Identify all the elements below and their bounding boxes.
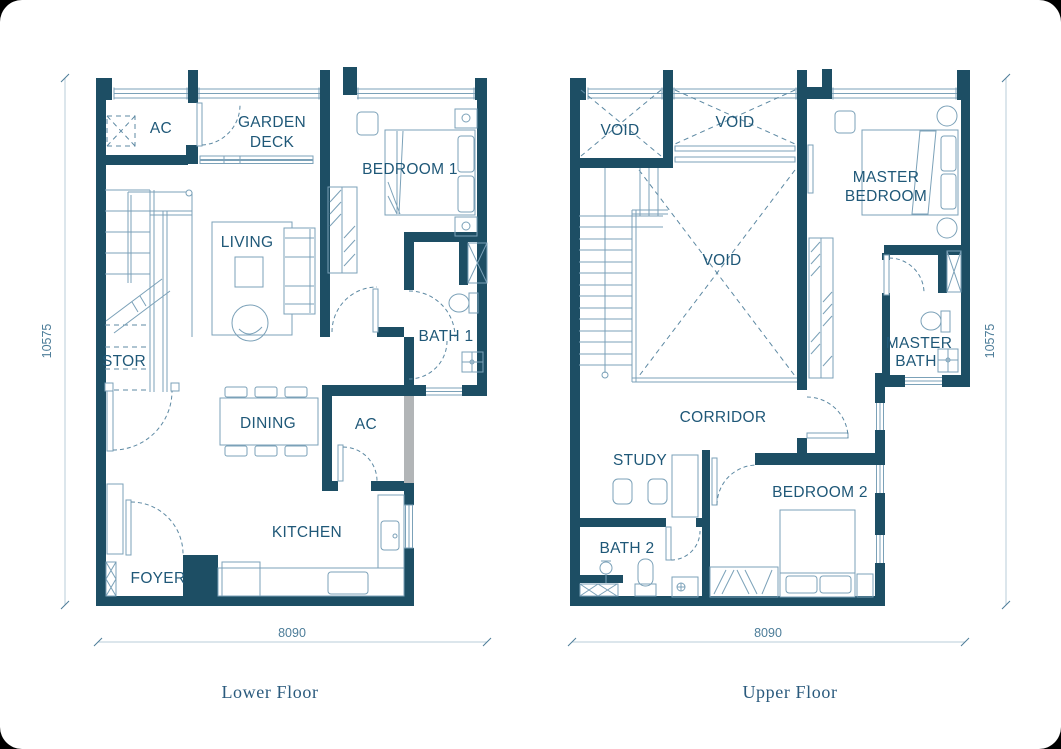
counter-icon [218, 568, 404, 596]
room-label-dining: DINING [240, 415, 296, 432]
wardrobe-icon [809, 238, 833, 378]
toilet-icon [469, 293, 478, 313]
room-label-void-center: VOID [702, 252, 741, 269]
floorplan-card: AC GARDEN DECK BEDROOM 1 LIVING STOR BAT… [0, 0, 1061, 749]
coffee-table-icon [235, 257, 263, 287]
bedroom2-furniture [710, 510, 873, 597]
caption-upper-floor: Upper Floor [742, 682, 837, 702]
dim-lower-height: 10575 [40, 324, 54, 359]
room-label-study: STUDY [613, 452, 667, 469]
party-wall-gray [404, 396, 414, 483]
room-label-master-bath: MASTER [886, 335, 952, 352]
mirror-icon [808, 145, 813, 193]
ac-ledge-icon [107, 116, 135, 146]
room-label-bath2: BATH 2 [600, 540, 655, 557]
bedroom1-furniture [328, 109, 477, 273]
room-label-living: LIVING [221, 234, 274, 251]
lower-floor-plan: AC GARDEN DECK BEDROOM 1 LIVING STOR BAT… [96, 67, 487, 606]
stove-icon [328, 572, 368, 594]
nightstand-icon [455, 109, 477, 128]
room-label-corridor: CORRIDOR [680, 409, 767, 426]
desk-icon [672, 455, 698, 517]
side-table-icon [937, 218, 957, 238]
room-label-master-bedroom: BEDROOM [845, 188, 927, 205]
room-label-master-bath: BATH [895, 353, 936, 370]
caption-lower-floor: Lower Floor [221, 682, 318, 702]
shower-icon [947, 251, 961, 292]
kitchen-sink-icon [381, 521, 399, 550]
room-label-ac-top: AC [150, 120, 172, 137]
toilet-icon [941, 311, 950, 332]
captions: Lower Floor Upper Floor [221, 682, 837, 702]
room-label-kitchen: KITCHEN [272, 524, 342, 541]
side-table-icon [937, 106, 957, 126]
counter-icon [378, 495, 404, 568]
cabinet-icon [107, 484, 123, 554]
room-label-master-bedroom: MASTER [853, 169, 919, 186]
room-label-ac-mid: AC [355, 416, 377, 433]
room-label-stor: STOR [102, 353, 146, 370]
shower-tray-icon [672, 577, 698, 597]
upper-room-labels: VOID VOID VOID MASTER BEDROOM MASTER BAT… [600, 114, 953, 557]
room-label-void-left: VOID [600, 122, 639, 139]
chair-icon [648, 479, 667, 504]
sink-icon [600, 562, 612, 574]
room-label-bedroom1: BEDROOM 1 [362, 161, 458, 178]
chair-icon [357, 112, 378, 135]
nightstand-icon [857, 574, 873, 597]
fridge-icon [222, 562, 260, 596]
wardrobe-icon [710, 567, 778, 597]
screenshot-stage: AC GARDEN DECK BEDROOM 1 LIVING STOR BAT… [0, 0, 1061, 749]
wardrobe-icon [328, 187, 357, 273]
room-label-garden-deck: GARDEN [238, 114, 306, 131]
room-label-foyer: FOYER [131, 570, 186, 587]
upper-stairs-icon [579, 168, 797, 382]
chair-icon [613, 479, 632, 504]
dim-upper-height: 10575 [983, 324, 997, 359]
room-label-void-top: VOID [715, 114, 754, 131]
shower-icon [580, 584, 618, 596]
floorplan-svg: AC GARDEN DECK BEDROOM 1 LIVING STOR BAT… [0, 0, 1061, 749]
room-label-bedroom2: BEDROOM 2 [772, 484, 868, 501]
armchair-icon [232, 305, 268, 341]
room-label-bath1: BATH 1 [419, 328, 474, 345]
foyer-glass-icon [106, 562, 116, 596]
dim-lower-width: 8090 [278, 626, 306, 640]
chair-icon [835, 111, 855, 133]
room-label-garden-deck: DECK [250, 134, 295, 151]
upper-floor-plan: VOID VOID VOID MASTER BEDROOM MASTER BAT… [570, 69, 970, 606]
dim-upper-width: 8090 [754, 626, 782, 640]
